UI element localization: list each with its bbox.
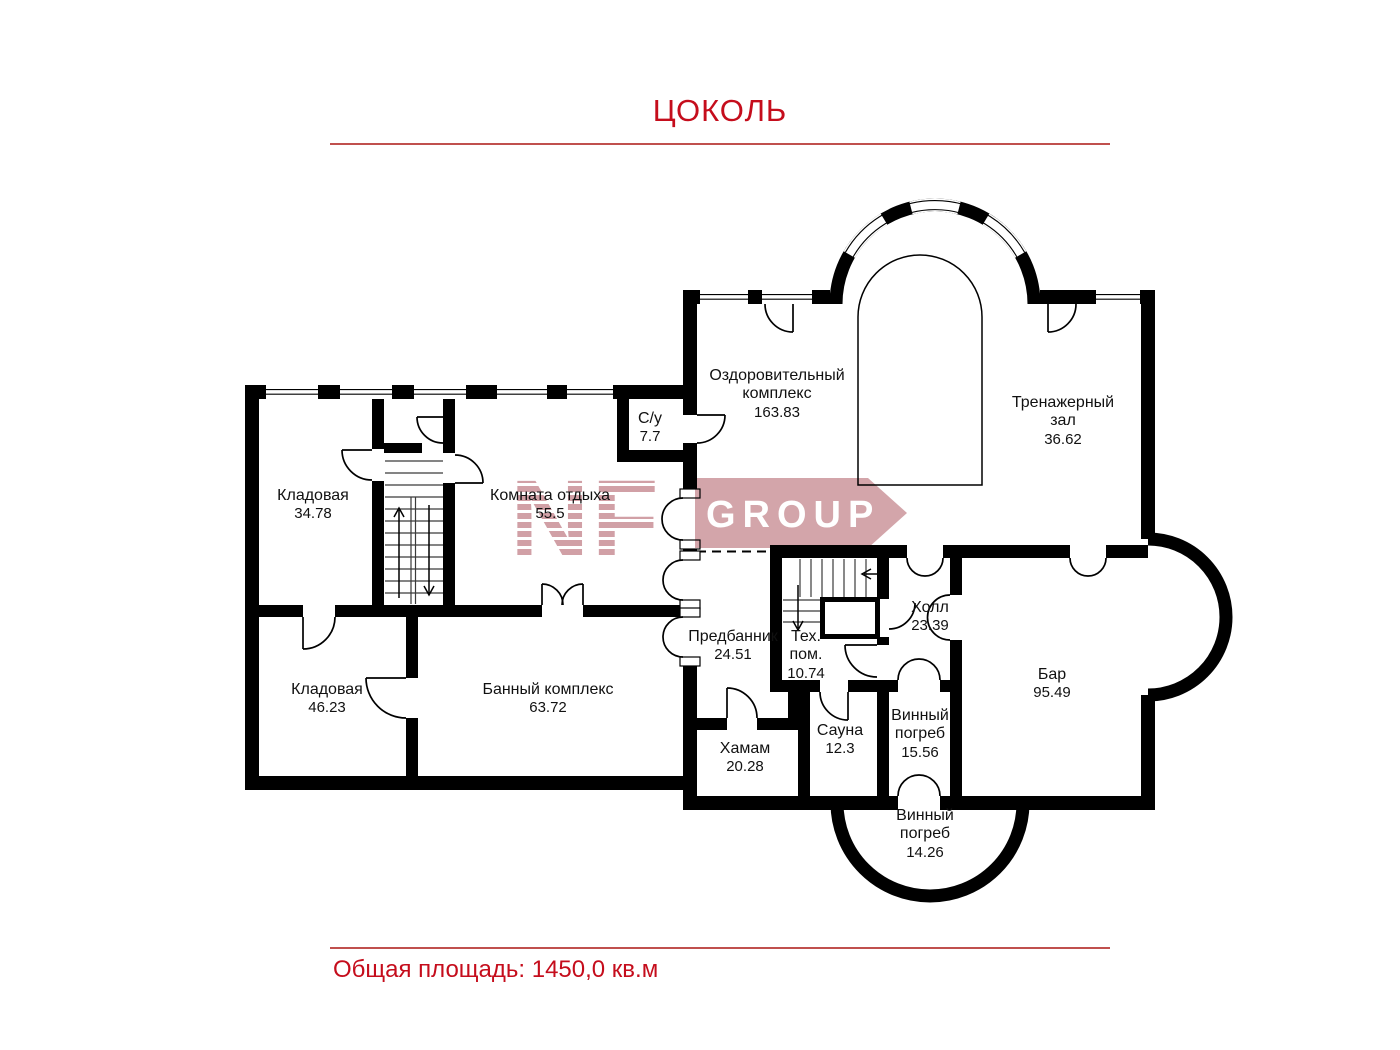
total-area-text: Общая площадь: 1450,0 кв.м (333, 956, 658, 984)
room-label-sauna: Сауна 12.3 (817, 722, 863, 758)
room-label-vinny-pogreb-1: Винный погреб 15.56 (891, 707, 949, 761)
footer-rule (330, 947, 1110, 949)
main-staircase (385, 461, 443, 604)
watermark-group-label: GROUP (706, 494, 880, 536)
room-label-banny: Банный комплекс 63.72 (482, 681, 613, 717)
room-label-ozdorovitelny: Оздоровительный комплекс 163.83 (709, 367, 844, 421)
interior-walls (259, 399, 1148, 796)
room-label-vinny-pogreb-2: Винный погреб 14.26 (896, 807, 954, 861)
room-label-trenazherny: Тренажерный зал 36.62 (1012, 394, 1114, 448)
room-label-kladovaya-2: Кладовая 46.23 (291, 681, 363, 717)
room-label-bar: Бар 95.49 (1033, 666, 1071, 702)
room-label-komnata-otdyha: Комната отдыха 55.5 (490, 487, 610, 523)
room-label-holl: Холл 23.39 (911, 599, 949, 635)
windows (266, 290, 1140, 399)
bar-bay-wall (1148, 539, 1226, 695)
room-label-su: С/у 7.7 (638, 410, 662, 446)
room-label-predbannik: Предбанник 24.51 (688, 628, 778, 664)
bay-window-arc (836, 201, 1034, 304)
floor-plan-page: ЦОКОЛЬ (0, 0, 1400, 1050)
room-label-hamam: Хамам 20.28 (720, 740, 770, 776)
lift-shaft (823, 600, 878, 637)
room-label-kladovaya-1: Кладовая 34.78 (277, 487, 349, 523)
floor-plan: NF GROUP (0, 0, 1400, 1050)
pool-outline (858, 255, 982, 485)
room-label-tech: Тех. пом. 10.74 (787, 628, 825, 682)
